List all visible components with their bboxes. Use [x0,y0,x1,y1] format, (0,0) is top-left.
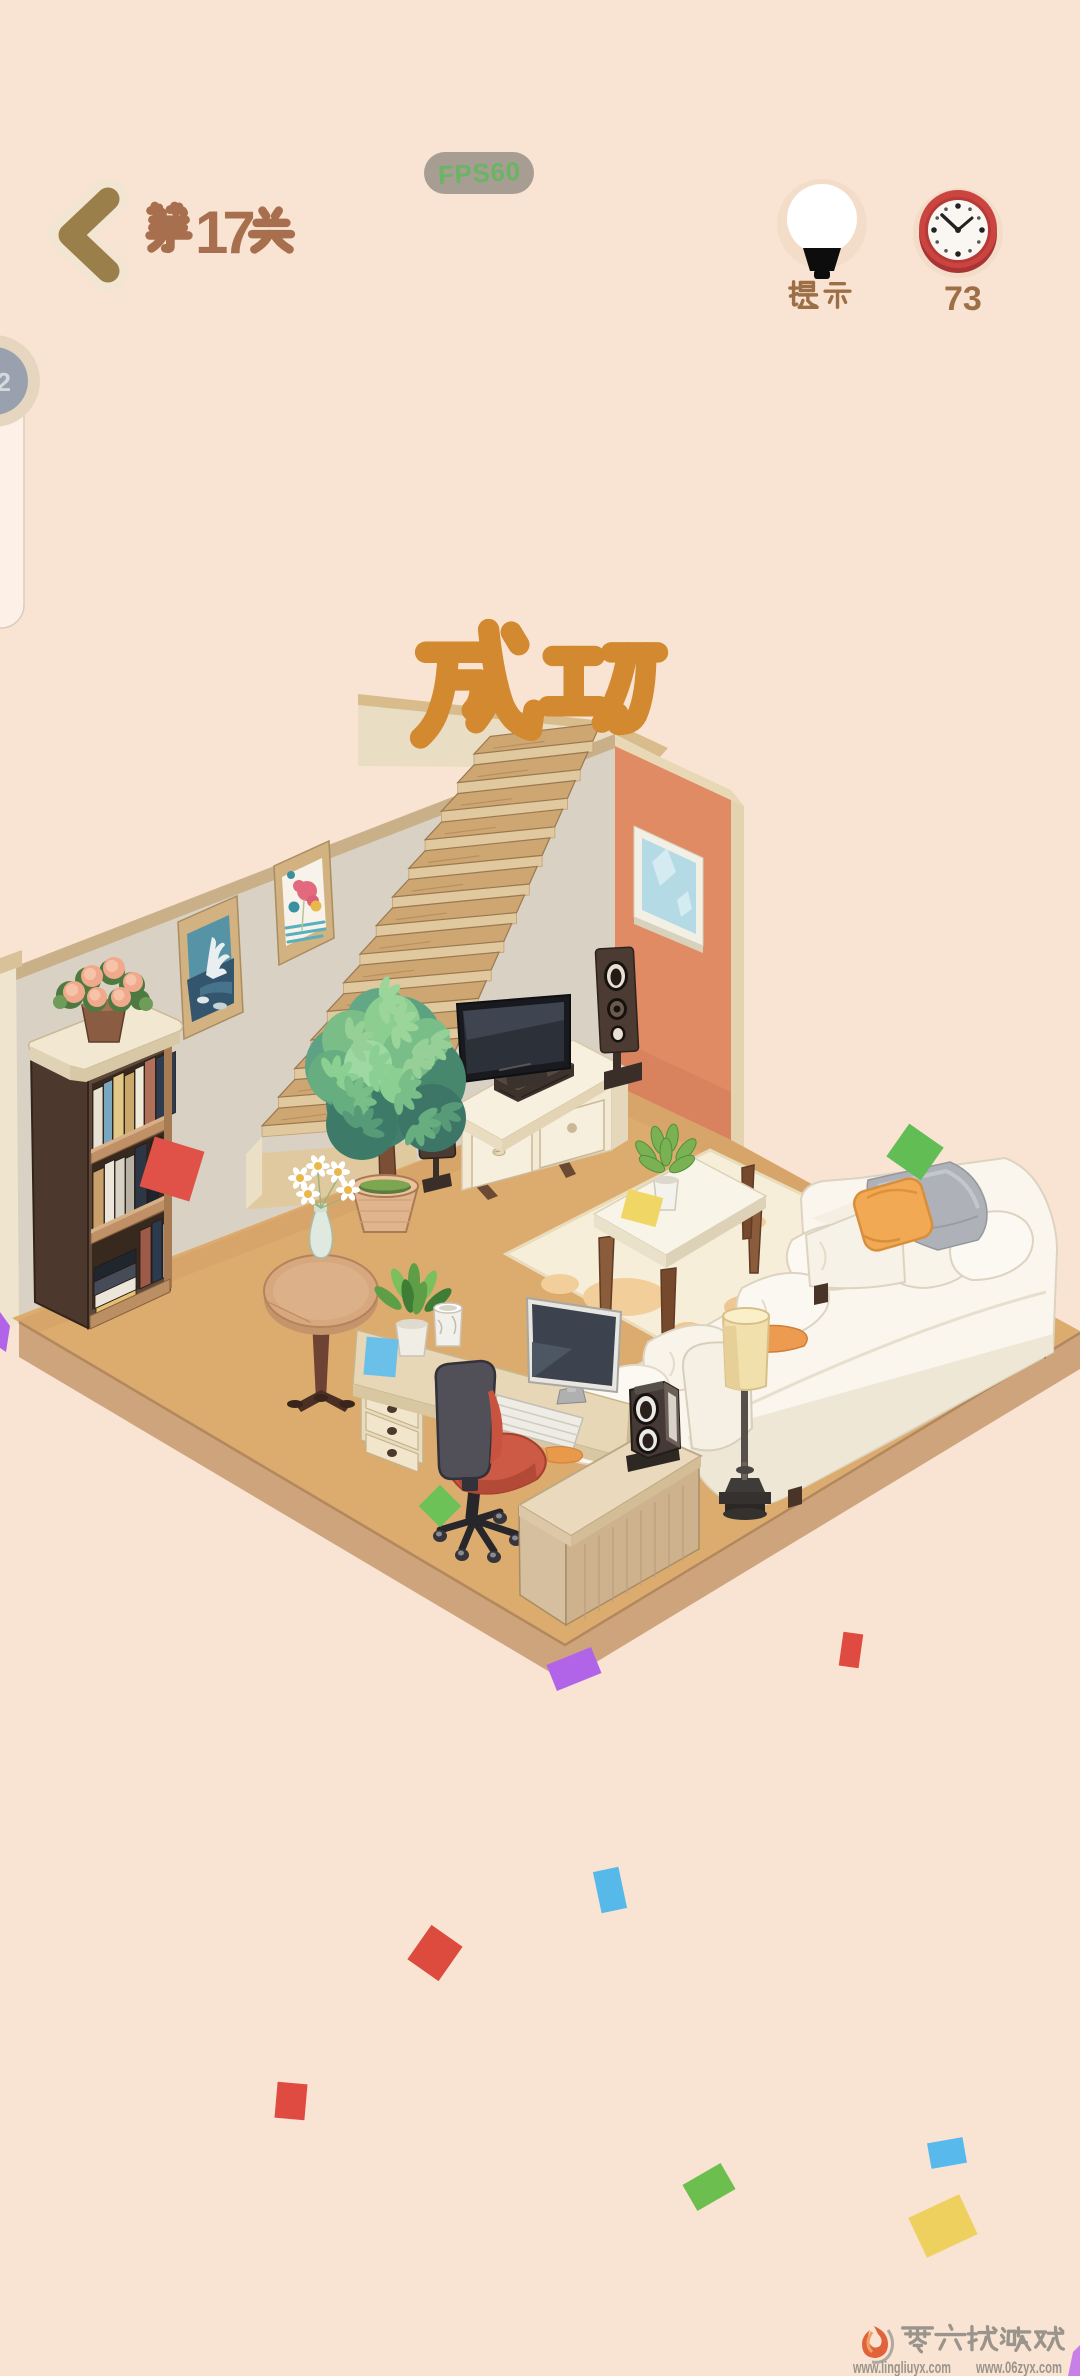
svg-text:73: 73 [944,280,982,318]
svg-text:www.06zyx.com: www.06zyx.com [975,2358,1062,2376]
svg-text:FPS60: FPS60 [437,156,520,190]
svg-text:22: 22 [0,367,11,397]
svg-text:www.lingliuyx.com: www.lingliuyx.com [852,2358,951,2376]
svg-text:17: 17 [195,199,253,266]
